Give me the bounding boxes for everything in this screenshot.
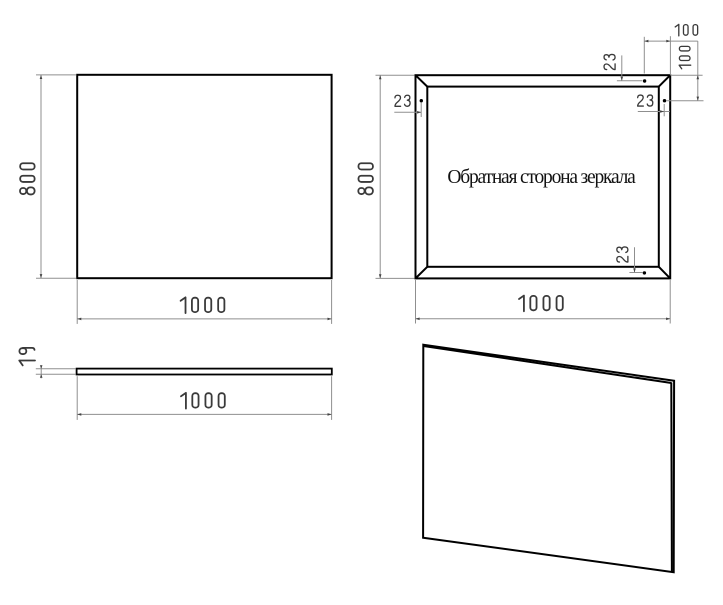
svg-text:Обратная сторона зеркала: Обратная сторона зеркала — [447, 167, 636, 188]
